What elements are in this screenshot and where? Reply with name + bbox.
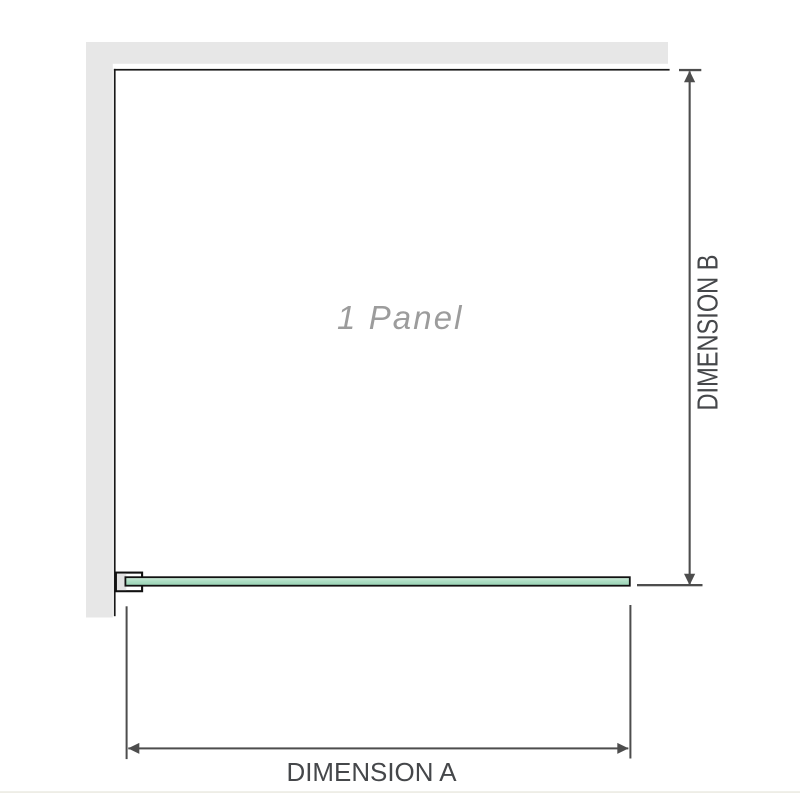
svg-text:1 Panel: 1 Panel — [337, 299, 463, 336]
svg-text:DIMENSION B: DIMENSION B — [693, 255, 725, 411]
svg-text:DIMENSION A: DIMENSION A — [287, 757, 458, 787]
